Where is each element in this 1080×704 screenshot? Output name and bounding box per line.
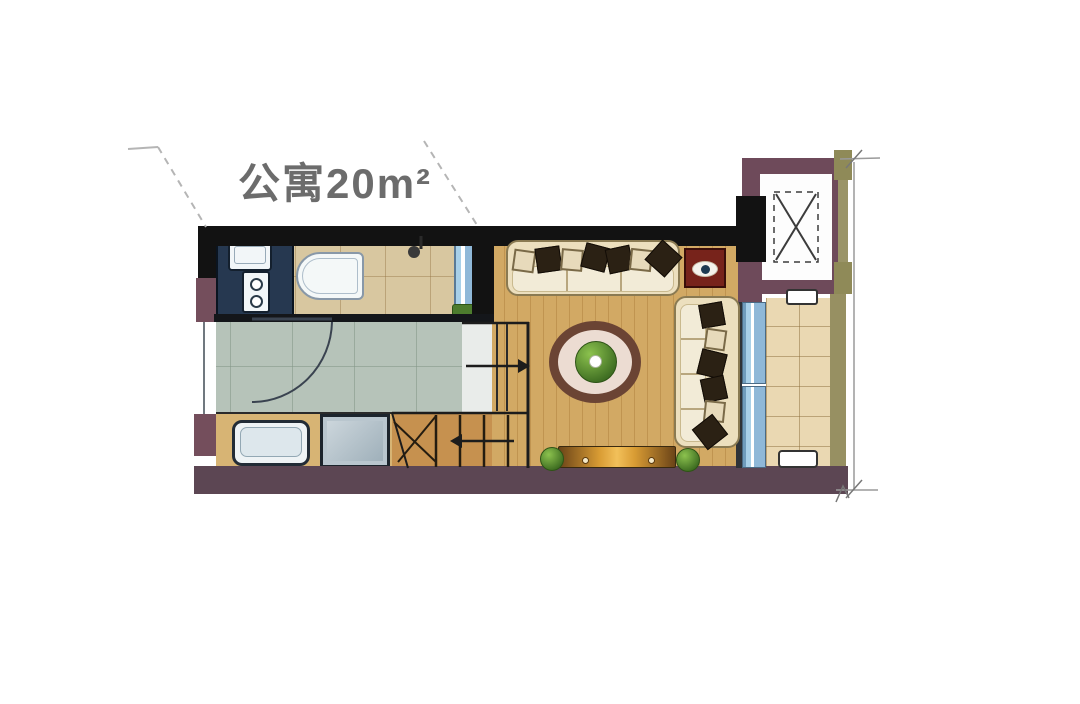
wall-bathroom-living-divider — [472, 226, 494, 320]
sofa-pillow — [534, 245, 562, 273]
bathtub-inner — [302, 258, 358, 294]
washing-machine-top — [327, 421, 383, 461]
tv-console — [558, 446, 676, 468]
sofa-pillow — [704, 328, 728, 352]
wall-balcony-right — [830, 294, 846, 468]
elevator-interior — [760, 174, 832, 280]
wall-olive-block-mid — [834, 262, 852, 294]
wall-bottom — [194, 466, 836, 494]
balcony-fixture-top — [786, 289, 818, 305]
entry-floor — [216, 322, 462, 414]
wall-pillar-left-upper — [196, 278, 216, 322]
sofa-pillow — [700, 375, 728, 403]
side-table-bowl-center — [701, 265, 710, 274]
kitchen-sink-basin — [234, 246, 266, 264]
plan-title: 公寓20m² — [238, 150, 432, 211]
plant-right — [676, 448, 700, 472]
balcony-glass-door-lower — [742, 386, 766, 468]
wall-balcony-door-jamb — [738, 262, 762, 302]
wall-bathroom-bottom — [214, 314, 494, 322]
sofa-pillow — [560, 248, 584, 272]
balcony-fixture-bottom — [778, 450, 818, 468]
wall-olive-strip — [838, 180, 848, 266]
bathroom-sink — [232, 420, 310, 466]
floorplan-canvas: 公寓20m² — [0, 0, 1080, 704]
tv-console-knob — [648, 457, 655, 464]
stove-burner — [250, 295, 263, 308]
rug-plant-flower — [589, 355, 602, 368]
wall-purple-block-bottom-right — [826, 466, 848, 494]
wall-olive-block-top — [834, 150, 852, 180]
sofa-pillow — [698, 301, 726, 329]
wall-elevator-connector — [736, 196, 766, 262]
tv-console-knob — [582, 457, 589, 464]
stove-burner — [250, 278, 263, 291]
plant-left — [540, 447, 564, 471]
sofa-pillow — [512, 249, 537, 274]
wall-pillar-left-lower — [194, 414, 216, 456]
side-table — [684, 248, 726, 288]
bathroom-sink-basin — [240, 427, 302, 457]
washing-machine — [320, 414, 390, 468]
balcony-glass-door-upper — [742, 302, 766, 384]
stove — [242, 271, 270, 313]
bathtub — [296, 252, 364, 300]
balcony-floor — [766, 298, 830, 468]
